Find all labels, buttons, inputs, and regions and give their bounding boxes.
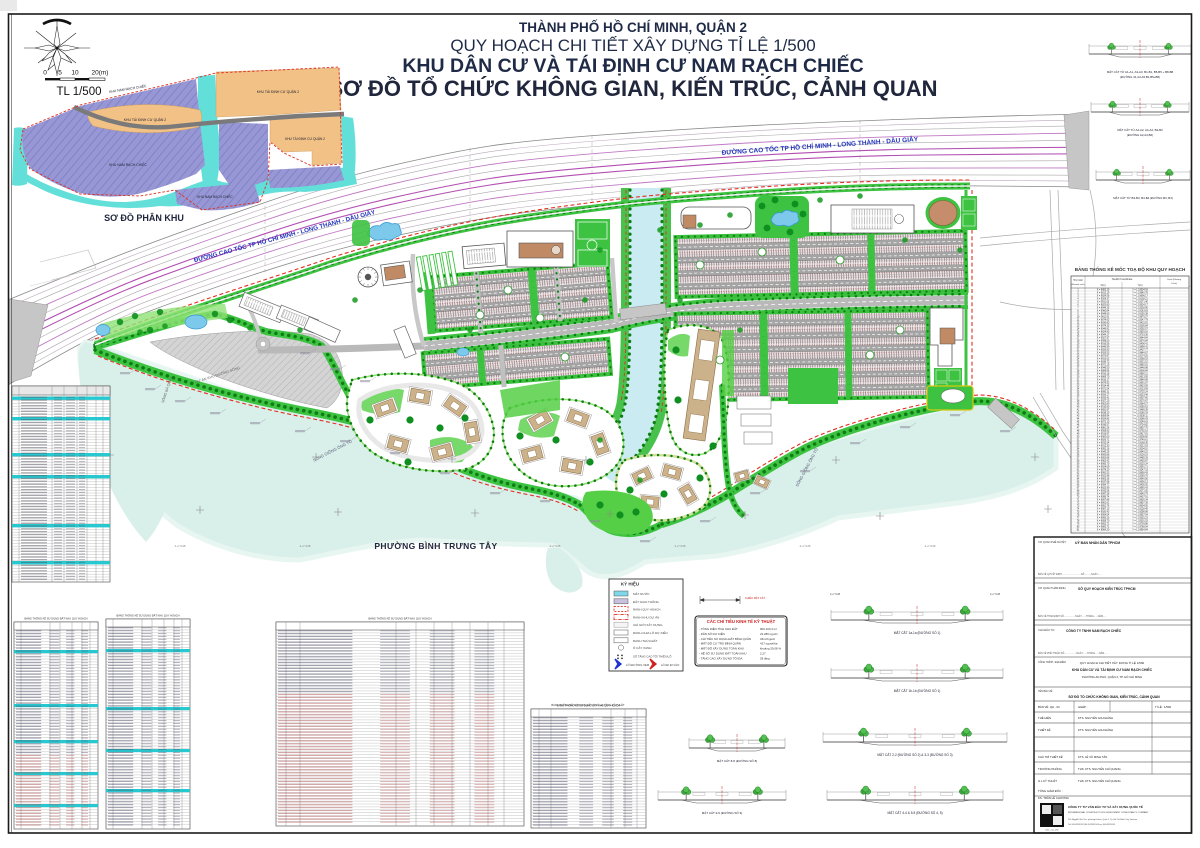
svg-text:X = 9830.83: X = 9830.83 [1097, 322, 1110, 324]
svg-text:Y = 1.19725.24: Y = 1.19725.24 [1132, 391, 1148, 393]
svg-text:Y = 1.19591.71: Y = 1.19591.71 [1132, 466, 1148, 468]
svg-text:Y = 1.19833.59: Y = 1.19833.59 [1132, 385, 1148, 387]
svg-text:Y = 1.19448.98: Y = 1.19448.98 [1132, 367, 1148, 369]
svg-text:X(m): X(m) [1101, 285, 1106, 287]
svg-text:X = 9861.61: X = 9861.61 [1097, 502, 1110, 504]
svg-text:X = 9910.80: X = 9910.80 [1097, 406, 1110, 408]
svg-text:Y = 1.19384.27: Y = 1.19384.27 [1132, 403, 1148, 405]
svg-text:X = 9837.98: X = 9837.98 [1097, 481, 1110, 483]
svg-text:Y = 1.19965.43: Y = 1.19965.43 [1132, 487, 1148, 489]
svg-text:SƠ ĐỒ PHÂN KHU: SƠ ĐỒ PHÂN KHU [104, 212, 184, 223]
svg-text:X = 9869.70: X = 9869.70 [1097, 376, 1110, 378]
svg-text:Y = 1.19325.23: Y = 1.19325.23 [1132, 517, 1148, 519]
svg-text:Y = 1.19150.38: Y = 1.19150.38 [1132, 313, 1148, 315]
svg-text:SỐ TẦNG CAO TỐI THIỂU/LÔ: SỐ TẦNG CAO TỐI THIỂU/LÔ [633, 653, 672, 658]
svg-text:Y = 1.19270.67: Y = 1.19270.67 [1132, 400, 1148, 402]
svg-text:THIẾT KẾ: THIẾT KẾ [1038, 727, 1051, 732]
svg-text:4+7.048: 4+7.048 [990, 592, 1001, 596]
svg-text:X = 9826.71: X = 9826.71 [1097, 439, 1110, 441]
svg-text:UỶ BAN NHÂN DÂN TPHCM: UỶ BAN NHÂN DÂN TPHCM [1075, 540, 1120, 545]
svg-text:20(m): 20(m) [92, 70, 109, 77]
svg-text:Y = 1.19940.78: Y = 1.19940.78 [1132, 292, 1148, 294]
svg-text:Y = 1.19724.82: Y = 1.19724.82 [1132, 424, 1148, 426]
svg-text:X = 9954.54: X = 9954.54 [1097, 514, 1110, 516]
svg-text:Y = 1.19415.81: Y = 1.19415.81 [1132, 322, 1148, 324]
svg-text:X = 9927.97: X = 9927.97 [1097, 337, 1110, 339]
svg-text:TÊN BẢN VẼ:: TÊN BẢN VẼ: [1038, 690, 1053, 693]
svg-text:- CHỈ TIÊU SỬ DỤNG ĐẤT BÌNH QU: - CHỈ TIÊU SỬ DỤNG ĐẤT BÌNH QUÂN [699, 636, 751, 641]
svg-text:KTS. NGUYỄN GIA KHÁNH: KTS. NGUYỄN GIA KHÁNH [1078, 715, 1113, 720]
svg-text:28 tầng: 28 tầng [760, 656, 770, 660]
svg-text:X = 9998.50: X = 9998.50 [1097, 340, 1110, 342]
svg-text:X = 9974.33: X = 9974.33 [1097, 325, 1110, 327]
svg-text:X = 9838.72: X = 9838.72 [1097, 361, 1110, 363]
svg-text:Cách): Cách) [1171, 283, 1177, 285]
svg-text:Y = 1.19126.19: Y = 1.19126.19 [1132, 454, 1148, 456]
svg-text:X = 9971.54: X = 9971.54 [1097, 388, 1110, 390]
svg-text:0: 0 [43, 70, 47, 77]
svg-text:4+7.048: 4+7.048 [175, 544, 186, 548]
svg-text:X = 9879.20: X = 9879.20 [1097, 469, 1110, 471]
svg-text:Y = 1.19846.67: Y = 1.19846.67 [1132, 352, 1148, 354]
svg-text:X = 9932.56: X = 9932.56 [1097, 490, 1110, 492]
svg-text:Y = 1.19298.98: Y = 1.19298.98 [1132, 511, 1148, 513]
svg-text:Y = 1.19338.11: Y = 1.19338.11 [1132, 415, 1148, 417]
svg-text:GHÉP :: GHÉP : [1078, 704, 1088, 709]
svg-text:X = 9838.20: X = 9838.20 [1097, 412, 1110, 414]
svg-text:MẶT CẮT 1a-1a (ĐƯỜNG SỐ 1): MẶT CẮT 1a-1a (ĐƯỜNG SỐ 1) [894, 630, 941, 635]
svg-text:QUY HOẠCH CHI TIẾT XÂY DỰNG TỈ: QUY HOẠCH CHI TIẾT XÂY DỰNG TỈ LỆ 1/500 [1080, 660, 1145, 665]
svg-text:X = 9926.53: X = 9926.53 [1097, 352, 1110, 354]
svg-text:Y = 1.19733.36: Y = 1.19733.36 [1132, 334, 1148, 336]
svg-text:Y = 1.19174.25: Y = 1.19174.25 [1132, 355, 1148, 357]
svg-text:X = 9916.97: X = 9916.97 [1097, 433, 1110, 435]
svg-text:Y = 1.19301.53: Y = 1.19301.53 [1132, 520, 1148, 522]
svg-text:34m²/người: 34m²/người [760, 637, 775, 641]
svg-text:X = 9944.25: X = 9944.25 [1097, 307, 1110, 309]
svg-text:Y = 1.19204.10: Y = 1.19204.10 [1132, 448, 1148, 450]
svg-text:CHỈ GIỚI XÂY DỰNG: CHỈ GIỚI XÂY DỰNG [633, 622, 663, 627]
svg-text:Y = 1.19508.60: Y = 1.19508.60 [1132, 436, 1148, 438]
svg-text:Y = 1.19247.23: Y = 1.19247.23 [1132, 469, 1148, 471]
svg-text:Y = 1.19531.15: Y = 1.19531.15 [1132, 361, 1148, 363]
svg-text:X = 9824.56: X = 9824.56 [1097, 295, 1110, 297]
svg-text:MẶT CẮT TỪ B3-B3, B4-B4 (ĐƯỜNG: MẶT CẮT TỪ B3-B3, B4-B4 (ĐƯỜNG B3, B4) [1113, 195, 1173, 200]
svg-text:- MẬT ĐỘ CƯ TRÚ BÌNH QUÂN: - MẬT ĐỘ CƯ TRÚ BÌNH QUÂN [699, 641, 741, 646]
svg-text:Y = 1.19437.91: Y = 1.19437.91 [1132, 496, 1148, 498]
svg-text:- TỔNG DIỆN TÍCH KHU ĐẤT: - TỔNG DIỆN TÍCH KHU ĐẤT [699, 626, 738, 631]
svg-text:X = 9857.88: X = 9857.88 [1097, 499, 1110, 501]
svg-text:Y = 1.19917.81: Y = 1.19917.81 [1132, 433, 1148, 435]
svg-text:Y = 1.19656.13: Y = 1.19656.13 [1132, 481, 1148, 483]
svg-text:X = 9853.88: X = 9853.88 [1097, 457, 1110, 459]
svg-text:X = 9823.80: X = 9823.80 [1097, 304, 1110, 306]
svg-text:- HỆ SỐ SỬ DỤNG ĐẤT TOÀN KHU: - HỆ SỐ SỬ DỤNG ĐẤT TOÀN KHU [699, 651, 746, 656]
svg-text:4+7.048: 4+7.048 [300, 544, 311, 548]
svg-text:KHU NAM RẠCH CHIẾC: KHU NAM RẠCH CHIẾC [197, 194, 233, 199]
svg-text:Y = 1.19265.76: Y = 1.19265.76 [1132, 475, 1148, 477]
svg-text:Y = 1.19485.29: Y = 1.19485.29 [1132, 457, 1148, 459]
svg-text:Y = 1.19271.55: Y = 1.19271.55 [1132, 490, 1148, 492]
svg-text:ICIC - Co.,LTD: ICIC - Co.,LTD [1045, 830, 1059, 832]
svg-text:X = 9805.36: X = 9805.36 [1097, 478, 1110, 480]
svg-text:X = 9881.26: X = 9881.26 [1097, 427, 1110, 429]
svg-text:Y = 1.19645.79: Y = 1.19645.79 [1132, 493, 1148, 495]
svg-text:X = 9960.84: X = 9960.84 [1097, 310, 1110, 312]
svg-text:khoảng 30,08 %: khoảng 30,08 % [760, 647, 781, 651]
svg-text:X = 9946.50: X = 9946.50 [1097, 367, 1110, 369]
svg-text:X = 9991.53: X = 9991.53 [1097, 472, 1110, 474]
svg-text:X = 9945.29: X = 9945.29 [1097, 451, 1110, 453]
svg-text:X = 9929.37: X = 9929.37 [1097, 298, 1110, 300]
svg-text:2,27: 2,27 [760, 652, 766, 656]
svg-text:Y = 1.19898.41: Y = 1.19898.41 [1132, 346, 1148, 348]
svg-text:- TẦNG CAO XÂY DỰNG TỐI ĐA: - TẦNG CAO XÂY DỰNG TỐI ĐA [699, 655, 742, 660]
svg-text:Ô CÂY XANH: Ô CÂY XANH [633, 645, 651, 650]
svg-text:KHU TÁI ĐỊNH CƯ QUẬN 2: KHU TÁI ĐỊNH CƯ QUẬN 2 [285, 137, 325, 141]
svg-text:4+7.048: 4+7.048 [800, 544, 811, 548]
svg-text:4+7.048: 4+7.048 [830, 592, 841, 596]
svg-text:G.L KỸ THUẬT: G.L KỸ THUẬT [1038, 778, 1057, 783]
svg-text:X = 9914.46: X = 9914.46 [1097, 385, 1110, 387]
svg-text:Y = 1.19848.99: Y = 1.19848.99 [1132, 379, 1148, 381]
svg-text:22.280 người: 22.280 người [760, 632, 778, 636]
svg-text:Y = 1.19163.83: Y = 1.19163.83 [1132, 310, 1148, 312]
svg-text:417 người/ha: 417 người/ha [760, 642, 778, 646]
svg-text:Y = 1.19576.84: Y = 1.19576.84 [1132, 340, 1148, 342]
svg-text:X = 9931.63: X = 9931.63 [1097, 358, 1110, 360]
svg-text:X = 9891.97: X = 9891.97 [1097, 409, 1110, 411]
svg-text:THÀNH PHỐ HỒ CHÍ MINH, QUẬN 2: THÀNH PHỐ HỒ CHÍ MINH, QUẬN 2 [519, 20, 747, 35]
svg-text:INTERNATIONAL CONSTRUCTION & I: INTERNATIONAL CONSTRUCTION & INVESTMENT … [1068, 811, 1149, 814]
svg-text:X = 9962.42: X = 9962.42 [1097, 460, 1110, 462]
svg-text:(Khoanh ranh): (Khoanh ranh) [1071, 283, 1085, 286]
svg-text:MẶT CẮT 4-4 & 5-5 (ĐƯỜNG SỐ 4,: MẶT CẮT 4-4 & 5-5 (ĐƯỜNG SỐ 4, 5) [887, 810, 942, 815]
svg-text:Y = 1.19829.18: Y = 1.19829.18 [1132, 331, 1148, 333]
svg-text:X = 9824.80: X = 9824.80 [1097, 331, 1110, 333]
svg-text:X = 9971.19: X = 9971.19 [1097, 364, 1110, 366]
svg-text:Y = 1.19489.39: Y = 1.19489.39 [1132, 409, 1148, 411]
svg-text:X = 9997.38: X = 9997.38 [1097, 493, 1110, 495]
svg-text:Y = 1.19504.93: Y = 1.19504.93 [1132, 289, 1148, 291]
svg-text:BẢNG THỐNG KÊ MỐC TOẠ ĐỘ KHU Q: BẢNG THỐNG KÊ MỐC TOẠ ĐỘ KHU QUY HOẠCH [1075, 265, 1186, 272]
svg-text:4+7.048: 4+7.048 [425, 544, 436, 548]
svg-text:CÔNG TY TƯ VẤN ĐẦU TƯ VÀ XÂY D: CÔNG TY TƯ VẤN ĐẦU TƯ VÀ XÂY DỰNG QUỐC T… [1068, 804, 1143, 809]
svg-text:X = 9833.41: X = 9833.41 [1097, 397, 1110, 399]
svg-text:SỞ QUY HOẠCH KIẾN TRÚC TPHCM: SỞ QUY HOẠCH KIẾN TRÚC TPHCM [1078, 586, 1136, 591]
svg-text:Y = 1.19813.95: Y = 1.19813.95 [1132, 376, 1148, 378]
svg-text:X = 9902.80: X = 9902.80 [1097, 403, 1110, 405]
svg-text:X = 9872.10: X = 9872.10 [1097, 421, 1110, 423]
svg-text:BẢN VẼ QUY ẾT ĐỊNH............: BẢN VẼ QUY ẾT ĐỊNH......................… [1038, 573, 1102, 576]
svg-text:Y = 1.19280.29: Y = 1.19280.29 [1132, 412, 1148, 414]
svg-text:QUY HOẠCH CHI TIẾT XÂY DỰNG TỈ: QUY HOẠCH CHI TIẾT XÂY DỰNG TỈ LỆ 1/500 [450, 36, 815, 55]
svg-text:X = 9893.20: X = 9893.20 [1097, 517, 1110, 519]
svg-text:X = 9879.92: X = 9879.92 [1097, 382, 1110, 384]
svg-text:MẶT CẮT TỪ A1-A1, A3-A3, B1-B1: MẶT CẮT TỪ A1-A1, A3-A3, B1-B1, B5-B5 + … [1107, 69, 1174, 74]
svg-text:LỐI ĐƯỜNG XEM: LỐI ĐƯỜNG XEM [626, 662, 650, 667]
svg-text:Y = 1.19882.81: Y = 1.19882.81 [1132, 364, 1148, 366]
svg-text:SƠ ĐỒ TỔ CHỨC KHÔNG GIAN, KIẾN: SƠ ĐỒ TỔ CHỨC KHÔNG GIAN, KIẾN TRÚC, CẢN… [1068, 694, 1160, 699]
svg-text:Y = 1.19604.55: Y = 1.19604.55 [1132, 505, 1148, 507]
svg-text:Y = 1.19385.63: Y = 1.19385.63 [1132, 406, 1148, 408]
svg-text:X = 9820.83: X = 9820.83 [1097, 349, 1110, 351]
svg-text:Y = 1.19557.54: Y = 1.19557.54 [1132, 514, 1148, 516]
svg-text:(ĐƯỜNG A2,A4,B2): (ĐƯỜNG A2,A4,B2) [1127, 132, 1153, 137]
svg-text:X = 9858.70: X = 9858.70 [1097, 520, 1110, 522]
svg-text:Y = 1.19123.69: Y = 1.19123.69 [1132, 388, 1148, 390]
svg-text:X = 9999.74: X = 9999.74 [1097, 496, 1110, 498]
svg-text:KHU TÁI ĐỊNH CƯ QUẬN 2: KHU TÁI ĐỊNH CƯ QUẬN 2 [124, 118, 167, 122]
svg-text:4+7.048: 4+7.048 [675, 544, 686, 548]
svg-text:X = 9893.70: X = 9893.70 [1097, 463, 1110, 465]
svg-text:SƠ ĐỒ TỔ CHỨC KHÔNG GIAN, KIẾN: SƠ ĐỒ TỔ CHỨC KHÔNG GIAN, KIẾN TRÚC, CẢN… [328, 76, 937, 101]
svg-text:Thứ mốc: Thứ mốc [1073, 279, 1083, 282]
svg-text:Y = 1.19212.53: Y = 1.19212.53 [1132, 445, 1148, 447]
svg-text:BẢN VẼ: QH - 04: BẢN VẼ: QH - 04 [1038, 704, 1060, 709]
svg-text:Y = 1.19954.94: Y = 1.19954.94 [1132, 529, 1148, 531]
svg-text:X = 9815.34: X = 9815.34 [1097, 442, 1110, 444]
svg-text:ĐẤT GIAO THÔNG: ĐẤT GIAO THÔNG [633, 599, 660, 604]
svg-text:X = 9922.98: X = 9922.98 [1097, 475, 1110, 477]
svg-text:10: 10 [71, 70, 79, 77]
svg-text:Y = 1.19979.27: Y = 1.19979.27 [1132, 316, 1148, 318]
svg-text:Y = 1.19406.41: Y = 1.19406.41 [1132, 343, 1148, 345]
svg-text:Y = 1.19644.64: Y = 1.19644.64 [1132, 337, 1148, 339]
svg-text:Y = 1.19534.17: Y = 1.19534.17 [1132, 304, 1148, 306]
svg-text:KHU DÂN CƯ VÀ TÁI ĐỊNH CƯ NAM: KHU DÂN CƯ VÀ TÁI ĐỊNH CƯ NAM RẠCH CHIẾC [1072, 667, 1153, 672]
svg-text:Y = 1.19768.54: Y = 1.19768.54 [1132, 526, 1148, 528]
svg-text:CÔNG TRÌNH / ĐỊA ĐIỂM:: CÔNG TRÌNH / ĐỊA ĐIỂM: [1038, 661, 1067, 664]
svg-text:5: 5 [58, 70, 62, 77]
svg-text:X = 9873.87: X = 9873.87 [1097, 355, 1110, 357]
svg-text:RANH KHU DỰ ÁN: RANH KHU DỰ ÁN [633, 615, 659, 619]
svg-text:PHƯỜNG AN PHÚ, QUẬN 2, TP. HỒ: PHƯỜNG AN PHÚ, QUẬN 2, TP. HỒ CHÍ MINH [1082, 674, 1142, 679]
svg-text:Y = 1.19405.92: Y = 1.19405.92 [1132, 484, 1148, 486]
svg-text:Y = 1.19292.57: Y = 1.19292.57 [1132, 328, 1148, 330]
svg-text:X = 9944.17: X = 9944.17 [1097, 334, 1110, 336]
svg-text:TỈ LỆ : 1/500: TỈ LỆ : 1/500 [1155, 704, 1171, 709]
svg-text:KHU NAM RẠCH CHIẾC: KHU NAM RẠCH CHIẾC [109, 162, 147, 167]
svg-text:X = 9994.77: X = 9994.77 [1097, 484, 1110, 486]
svg-text:Y = 1.19286.43: Y = 1.19286.43 [1132, 418, 1148, 420]
svg-text:X = 9851.76: X = 9851.76 [1097, 505, 1110, 507]
svg-text:Y = 1.19608.84: Y = 1.19608.84 [1132, 370, 1148, 372]
svg-text:- MẬT ĐỘ XÂY DỰNG TOÀN KHU: - MẬT ĐỘ XÂY DỰNG TOÀN KHU [699, 646, 744, 651]
svg-text:Y = 1.19858.43: Y = 1.19858.43 [1132, 472, 1148, 474]
svg-text:X = 9893.88: X = 9893.88 [1097, 454, 1110, 456]
svg-text:Y = 1.19205.84: Y = 1.19205.84 [1132, 325, 1148, 327]
svg-text:900.103,4 m²: 900.103,4 m² [760, 627, 777, 631]
svg-text:TL 1/500: TL 1/500 [57, 86, 102, 98]
svg-text:X = 9852.71: X = 9852.71 [1097, 523, 1110, 525]
svg-text:X = 9859.94: X = 9859.94 [1097, 415, 1110, 417]
svg-text:Toạ Độ Coordinate: Toạ Độ Coordinate [1112, 278, 1133, 281]
svg-text:MẶT CẮT TỪ A2-A2, A4-A4, B2-B2: MẶT CẮT TỪ A2-A2, A4-A4, B2-B2 [1117, 127, 1163, 132]
svg-text:X = 9946.91: X = 9946.91 [1097, 328, 1110, 330]
svg-text:Y = 1.19960.21: Y = 1.19960.21 [1132, 373, 1148, 375]
svg-text:Y = 1.19857.39: Y = 1.19857.39 [1132, 502, 1148, 504]
svg-text:BẢN VẼ PHÊ THUẬN SỐ...........: BẢN VẼ PHÊ THUẬN SỐ...................NG… [1038, 652, 1108, 655]
svg-text:Y = 1.19328.90: Y = 1.19328.90 [1132, 307, 1148, 309]
svg-text:Y = 1.19168.36: Y = 1.19168.36 [1132, 442, 1148, 444]
svg-text:Y = 1.19268.53: Y = 1.19268.53 [1132, 358, 1148, 360]
svg-text:X = 9920.43: X = 9920.43 [1097, 511, 1110, 513]
svg-text:X = 9890.31: X = 9890.31 [1097, 391, 1110, 393]
svg-text:X = 9800.71: X = 9800.71 [1097, 526, 1110, 528]
svg-text:RANH THỬA ĐẤT: RANH THỬA ĐẤT [633, 638, 658, 643]
svg-text:Y = 1.19247.79: Y = 1.19247.79 [1132, 319, 1148, 321]
svg-text:Y = 1.19930.34: Y = 1.19930.34 [1132, 499, 1148, 501]
svg-text:MẶT CẮT 1b-1b (ĐƯỜNG SỐ 1): MẶT CẮT 1b-1b (ĐƯỜNG SỐ 1) [894, 688, 941, 693]
svg-text:X = 9916.18: X = 9916.18 [1097, 373, 1110, 375]
svg-text:CHỦ TRÌ THIẾT KẾ: CHỦ TRÌ THIẾT KẾ [1038, 754, 1063, 759]
svg-text:(ĐƯỜNG 41,A3,A5,B1,B5+B8): (ĐƯỜNG 41,A3,A5,B1,B5+B8) [1120, 74, 1160, 79]
svg-text:KTS. LÊ VŨ MINH TÂN: KTS. LÊ VŨ MINH TÂN [1078, 754, 1107, 759]
svg-text:KS. TRẦN LÊ CHƯƠNG: KS. TRẦN LÊ CHƯƠNG [1038, 795, 1069, 800]
svg-text:Y = 1.19128.45: Y = 1.19128.45 [1132, 508, 1148, 510]
svg-text:MẶT CẮT 2-2 (ĐƯỜNG SỐ 2) & 3-3: MẶT CẮT 2-2 (ĐƯỜNG SỐ 2) & 3-3 (ĐƯỜNG SỐ… [877, 752, 952, 757]
svg-text:Y = 1.19138.21: Y = 1.19138.21 [1132, 298, 1148, 300]
svg-text:Y = 1.19749.61: Y = 1.19749.61 [1132, 439, 1148, 441]
svg-text:X = 9874.63: X = 9874.63 [1097, 319, 1110, 321]
svg-text:X = 9924.69: X = 9924.69 [1097, 466, 1110, 468]
svg-text:X = 9927.20: X = 9927.20 [1097, 400, 1110, 402]
svg-text:LỐI ĐI ĐI VÀO: LỐI ĐI ĐI VÀO [661, 662, 680, 667]
svg-text:CÁC CHỈ TIÊU KINH TẾ KỸ THUẬT: CÁC CHỈ TIÊU KINH TẾ KỸ THUẬT [707, 619, 776, 624]
svg-text:Y = 1.19455.87: Y = 1.19455.87 [1132, 460, 1148, 462]
svg-text:X = 9846.99: X = 9846.99 [1097, 346, 1110, 348]
svg-text:X = 9949.60: X = 9949.60 [1097, 313, 1110, 315]
svg-text:X = 9812.19: X = 9812.19 [1097, 292, 1110, 294]
svg-text:Y = 1.19507.60: Y = 1.19507.60 [1132, 397, 1148, 399]
svg-text:X = 9953.16: X = 9953.16 [1097, 448, 1110, 450]
svg-text:BẢN VẼ THẨM ĐỊNH SỐ...........: BẢN VẼ THẨM ĐỊNH SỐ..................NGÀ… [1038, 615, 1107, 618]
svg-text:4+7.048: 4+7.048 [550, 544, 561, 548]
svg-text:KTS. NGUYỄN GIA KHÁNH: KTS. NGUYỄN GIA KHÁNH [1078, 727, 1113, 732]
svg-text:X = 9916.56: X = 9916.56 [1097, 343, 1110, 345]
svg-text:RANH QUY HOẠCH: RANH QUY HOẠCH [633, 608, 660, 612]
svg-text:PHƯỜNG BÌNH TRƯNG TÂY: PHƯỜNG BÌNH TRƯNG TÂY [374, 540, 497, 551]
svg-text:X = 9911.63: X = 9911.63 [1097, 301, 1110, 303]
svg-text:Tel: 84.8.8911812 (84.8) 8911: Tel: 84.8.8911812 (84.8) 8911814 Fax: 84… [1068, 824, 1116, 826]
svg-text:THS. KTS. NGUYỄN CHÍ QUANG: THS. KTS. NGUYỄN CHÍ QUANG [1078, 766, 1121, 771]
svg-text:X = 9926.17: X = 9926.17 [1097, 394, 1110, 396]
svg-text:RANH CHIA LÔ DỰ KIẾN: RANH CHIA LÔ DỰ KIẾN [633, 630, 668, 635]
svg-text:Y = 1.19696.17: Y = 1.19696.17 [1132, 295, 1148, 297]
svg-text:X = 9924.85: X = 9924.85 [1097, 418, 1110, 420]
svg-text:TRƯỞNG PHÒNG: TRƯỞNG PHÒNG [1038, 766, 1062, 771]
svg-text:KHU TÁI ĐỊNH CƯ QUẬN 2: KHU TÁI ĐỊNH CƯ QUẬN 2 [257, 90, 300, 94]
svg-text:X = 9882.29: X = 9882.29 [1097, 289, 1110, 291]
svg-text:Y = 1.19739.88: Y = 1.19739.88 [1132, 523, 1148, 525]
svg-text:4+7.048: 4+7.048 [925, 544, 936, 548]
svg-text:Y(m): Y(m) [1138, 285, 1143, 287]
svg-text:X = 9936.57: X = 9936.57 [1097, 424, 1110, 426]
svg-text:X = 9811.81: X = 9811.81 [1097, 316, 1110, 318]
svg-text:Y = 1.19249.63: Y = 1.19249.63 [1132, 421, 1148, 423]
svg-text:KÝ HIỆU: KÝ HIỆU [621, 580, 639, 587]
svg-text:CÔNG TY TNHH NAM RẠCH CHIẾC: CÔNG TY TNHH NAM RẠCH CHIẾC [1066, 628, 1122, 633]
svg-text:Cạnh (Khoảng: Cạnh (Khoảng [1167, 278, 1182, 281]
svg-text:X = 9900.60: X = 9900.60 [1097, 436, 1110, 438]
svg-text:THS. KTS. NGUYỄN CHÍ QUANG: THS. KTS. NGUYỄN CHÍ QUANG [1078, 778, 1121, 783]
svg-text:TỔNG GIÁM ĐỐC :: TỔNG GIÁM ĐỐC : [1038, 788, 1063, 793]
svg-text:X = 9823.99: X = 9823.99 [1097, 487, 1110, 489]
svg-text:Y = 1.19691.97: Y = 1.19691.97 [1132, 382, 1148, 384]
svg-text:Y = 1.19171.40: Y = 1.19171.40 [1132, 301, 1148, 303]
svg-text:Y = 1.19407.77: Y = 1.19407.77 [1132, 349, 1148, 351]
svg-text:MẶT CẮT 8-8 (ĐƯỜNG SỐ 8): MẶT CẮT 8-8 (ĐƯỜNG SỐ 8) [717, 758, 758, 763]
svg-text:Y = 1.19323.46: Y = 1.19323.46 [1132, 394, 1148, 396]
svg-text:THỂ HIỆN: THỂ HIỆN [1038, 715, 1051, 720]
svg-text:X = 9912.30: X = 9912.30 [1097, 445, 1110, 447]
svg-text:Y = 1.19225.24: Y = 1.19225.24 [1132, 463, 1148, 465]
svg-text:MẶT CẮT 9-9 (ĐƯỜNG SỐ 9): MẶT CẮT 9-9 (ĐƯỜNG SỐ 9) [702, 810, 743, 815]
svg-text:X = 9987.13: X = 9987.13 [1097, 508, 1110, 510]
svg-text:X = 9889.86: X = 9889.86 [1097, 370, 1110, 372]
svg-text:MẶT NƯỚC: MẶT NƯỚC [633, 591, 650, 596]
svg-text:- DÂN SỐ DỰ KIẾN: - DÂN SỐ DỰ KIẾN [699, 631, 725, 636]
svg-text:X = 9964.20: X = 9964.20 [1097, 529, 1110, 531]
svg-text:Y = 1.19792.16: Y = 1.19792.16 [1132, 430, 1148, 432]
svg-text:105 Nguyễn Văn Thủ, phường Dak: 105 Nguyễn Văn Thủ, phường Dakao, Quận 1… [1068, 818, 1137, 821]
svg-text:X = 9816.17: X = 9816.17 [1097, 379, 1110, 381]
svg-text:Y = 1.19649.22: Y = 1.19649.22 [1132, 451, 1148, 453]
svg-text:Y = 1.19640.56: Y = 1.19640.56 [1132, 478, 1148, 480]
svg-text:KHU DÂN CƯ VÀ TÁI ĐỊNH CƯ NAM: KHU DÂN CƯ VÀ TÁI ĐỊNH CƯ NAM RẠCH CHIẾC [402, 53, 863, 77]
svg-text:Y = 1.19807.75: Y = 1.19807.75 [1132, 427, 1148, 429]
svg-text:X = 9958.93: X = 9958.93 [1097, 430, 1110, 432]
